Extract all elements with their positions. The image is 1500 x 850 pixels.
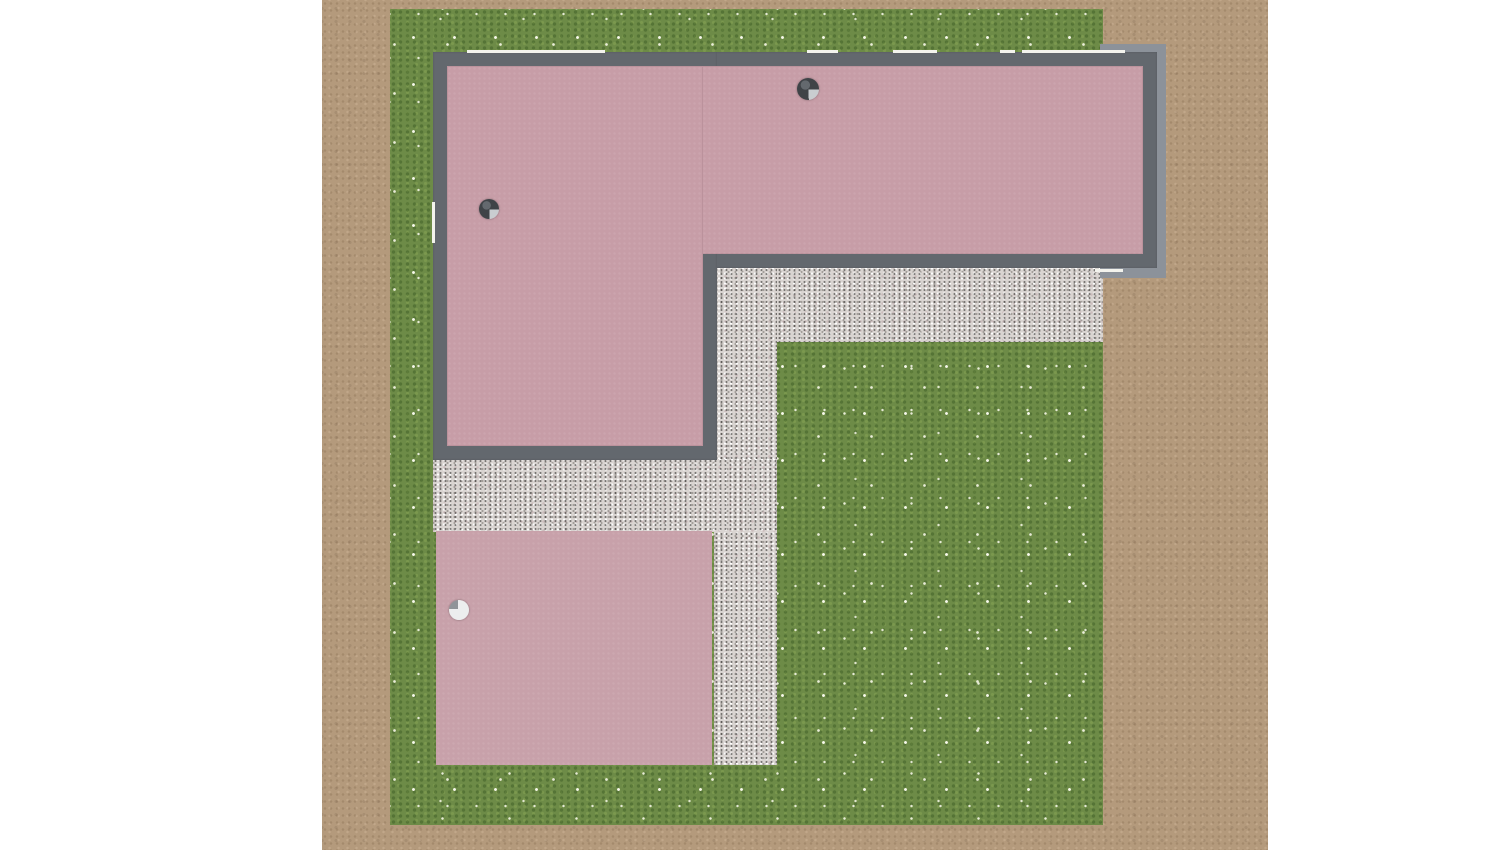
vent-icon-3	[449, 600, 469, 620]
window-marker-7	[1095, 269, 1123, 272]
window-marker-2	[807, 50, 838, 53]
window-marker-6	[432, 202, 435, 243]
gravel-path-under-left-wing	[433, 459, 777, 532]
chimney-icon-1	[797, 78, 819, 100]
window-marker-5	[1022, 50, 1125, 53]
window-marker-1	[467, 50, 605, 53]
building-roof-left-wing	[447, 66, 703, 446]
window-marker-4	[1000, 50, 1015, 53]
window-marker-3	[893, 50, 937, 53]
terrace-slab	[436, 531, 712, 765]
chimney-icon-2	[479, 199, 499, 219]
plan-viewport	[0, 0, 1500, 850]
